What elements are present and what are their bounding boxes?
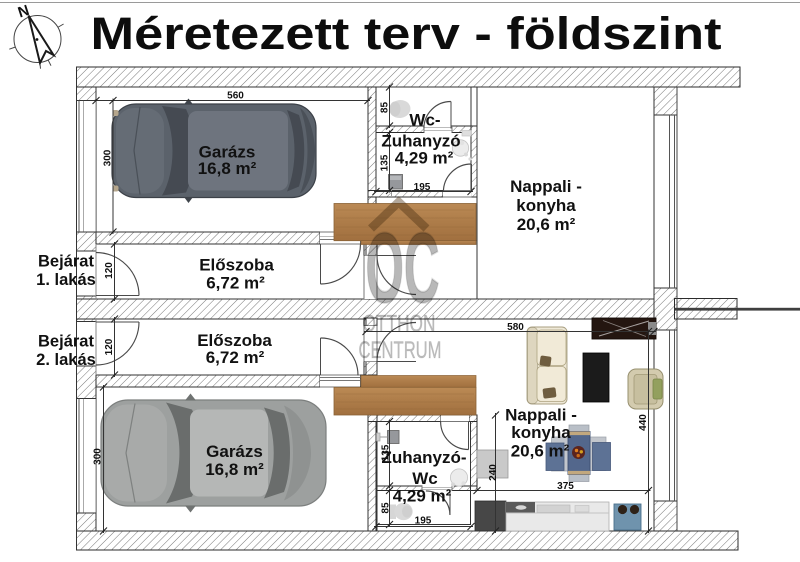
svg-text:Zuhanyzó-: Zuhanyzó-	[382, 448, 467, 467]
svg-text:Nappali -: Nappali -	[510, 177, 582, 196]
svg-text:Méretezett terv - földszint: Méretezett terv - földszint	[91, 8, 722, 59]
svg-text:20,6 m²: 20,6 m²	[511, 442, 570, 461]
svg-text:85: 85	[380, 102, 391, 114]
svg-text:Bejárat: Bejárat	[38, 333, 94, 351]
svg-text:konyha: konyha	[511, 423, 571, 442]
svg-text:85: 85	[381, 502, 392, 514]
svg-text:4,29 m²: 4,29 m²	[393, 487, 452, 506]
svg-text:2. lakás: 2. lakás	[36, 351, 96, 369]
svg-text:4,29 m²: 4,29 m²	[395, 149, 454, 168]
svg-text:16,8 m²: 16,8 m²	[205, 460, 264, 479]
svg-text:440: 440	[638, 414, 649, 431]
svg-text:6,72 m²: 6,72 m²	[206, 274, 265, 293]
svg-text:OC: OC	[366, 212, 440, 323]
svg-text:580: 580	[507, 322, 524, 333]
svg-text:300: 300	[93, 448, 104, 465]
svg-text:6,72 m²: 6,72 m²	[206, 348, 265, 367]
svg-text:195: 195	[414, 182, 431, 193]
svg-text:Bejárat: Bejárat	[38, 253, 94, 271]
svg-text:20,6 m²: 20,6 m²	[517, 215, 576, 234]
svg-text:135: 135	[380, 154, 391, 171]
svg-text:CENTRUM: CENTRUM	[359, 337, 442, 364]
svg-text:OTTHON: OTTHON	[363, 311, 436, 338]
svg-text:120: 120	[104, 262, 115, 279]
svg-text:konyha: konyha	[516, 196, 576, 215]
svg-text:1. lakás: 1. lakás	[36, 271, 96, 289]
svg-text:240: 240	[488, 464, 499, 481]
svg-text:195: 195	[415, 516, 432, 527]
svg-text:Wc-: Wc-	[409, 111, 440, 130]
svg-text:560: 560	[227, 91, 244, 102]
svg-text:Wc: Wc	[412, 469, 438, 488]
svg-text:120: 120	[104, 338, 115, 355]
svg-text:375: 375	[557, 481, 574, 492]
svg-text:Nappali -: Nappali -	[505, 406, 577, 425]
svg-text:16,8 m²: 16,8 m²	[198, 159, 257, 178]
svg-text:Előszoba: Előszoba	[199, 256, 274, 275]
svg-text:Garázs: Garázs	[206, 442, 263, 461]
svg-text:300: 300	[103, 149, 114, 166]
